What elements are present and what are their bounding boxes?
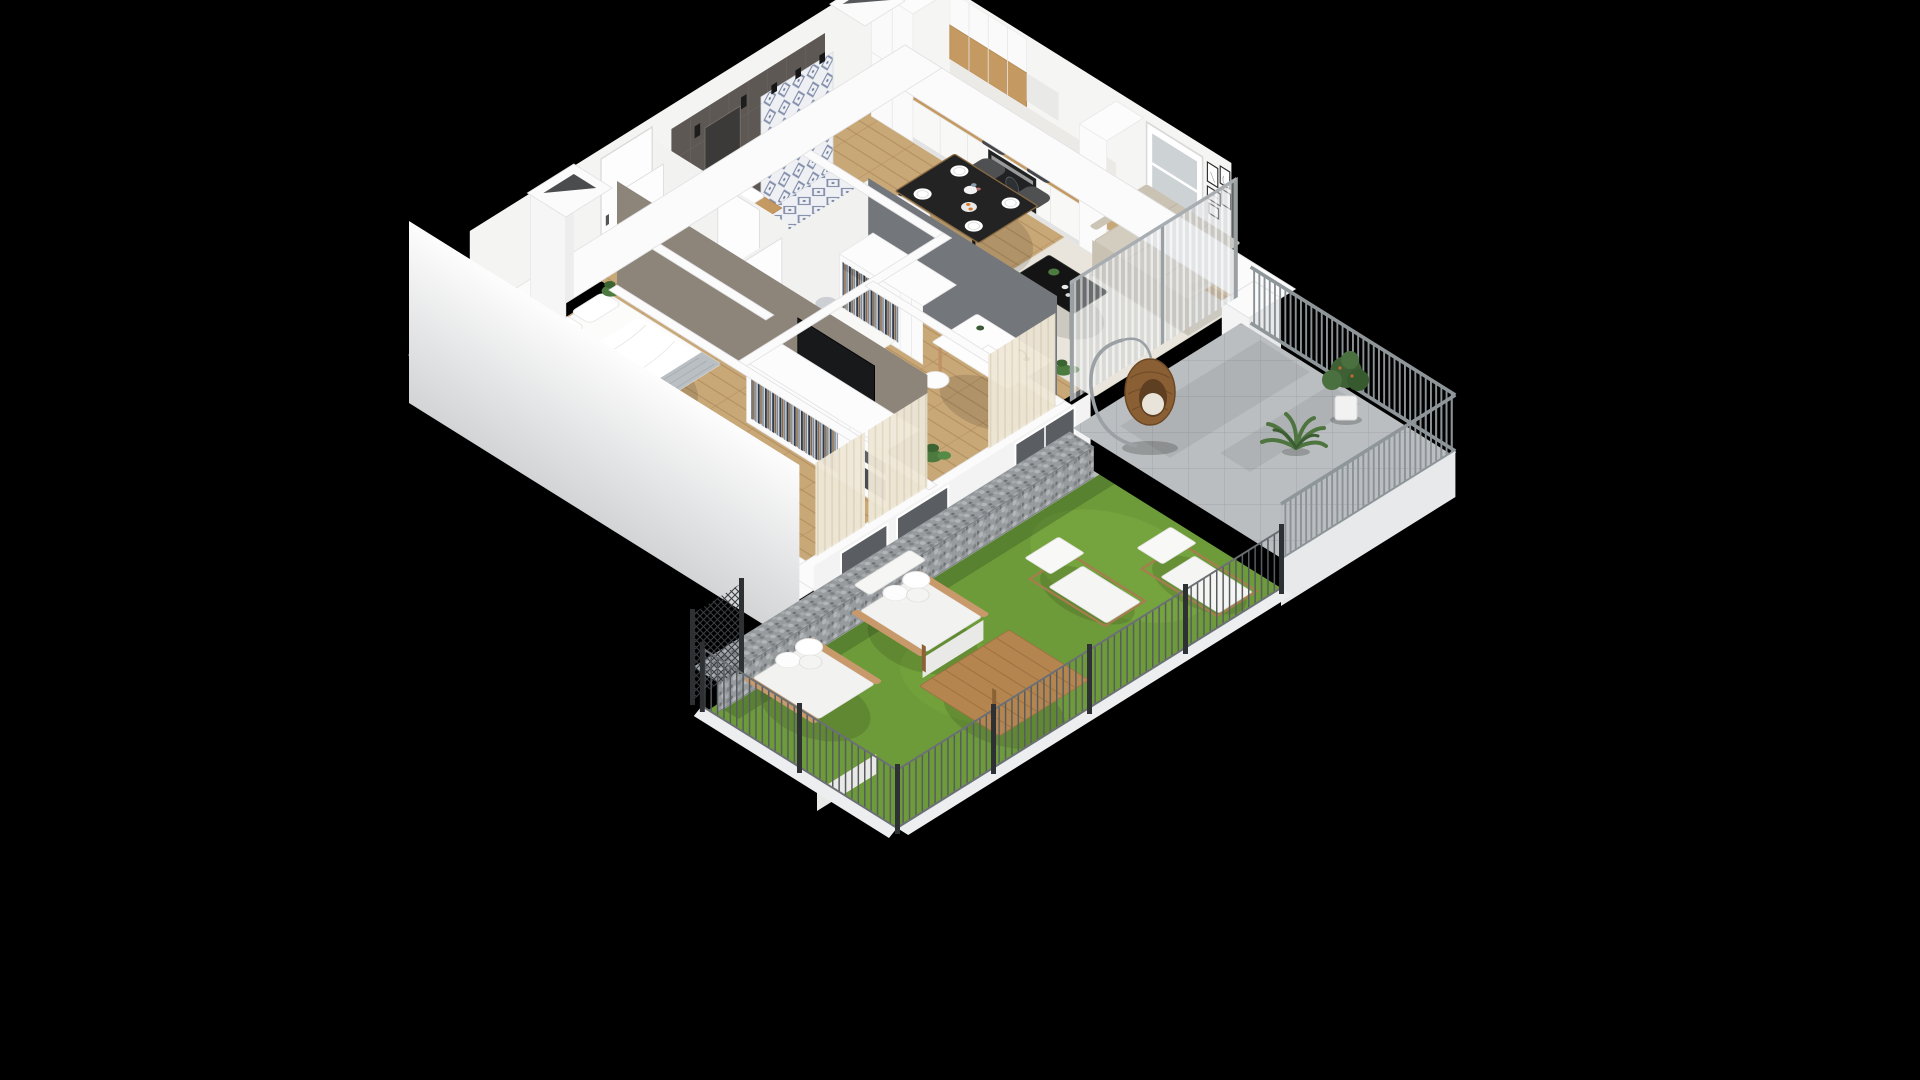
- floor-plan-render: [0, 0, 1920, 1080]
- fence-post: [1087, 644, 1092, 714]
- door-handle: [606, 214, 609, 226]
- fence-post: [991, 704, 996, 774]
- fence-post: [895, 764, 900, 834]
- fence-post: [1279, 524, 1284, 594]
- egg-chair-cushion: [1142, 393, 1164, 415]
- fence-post: [797, 703, 802, 773]
- fence-post: [700, 642, 705, 712]
- fence-post: [1183, 584, 1188, 654]
